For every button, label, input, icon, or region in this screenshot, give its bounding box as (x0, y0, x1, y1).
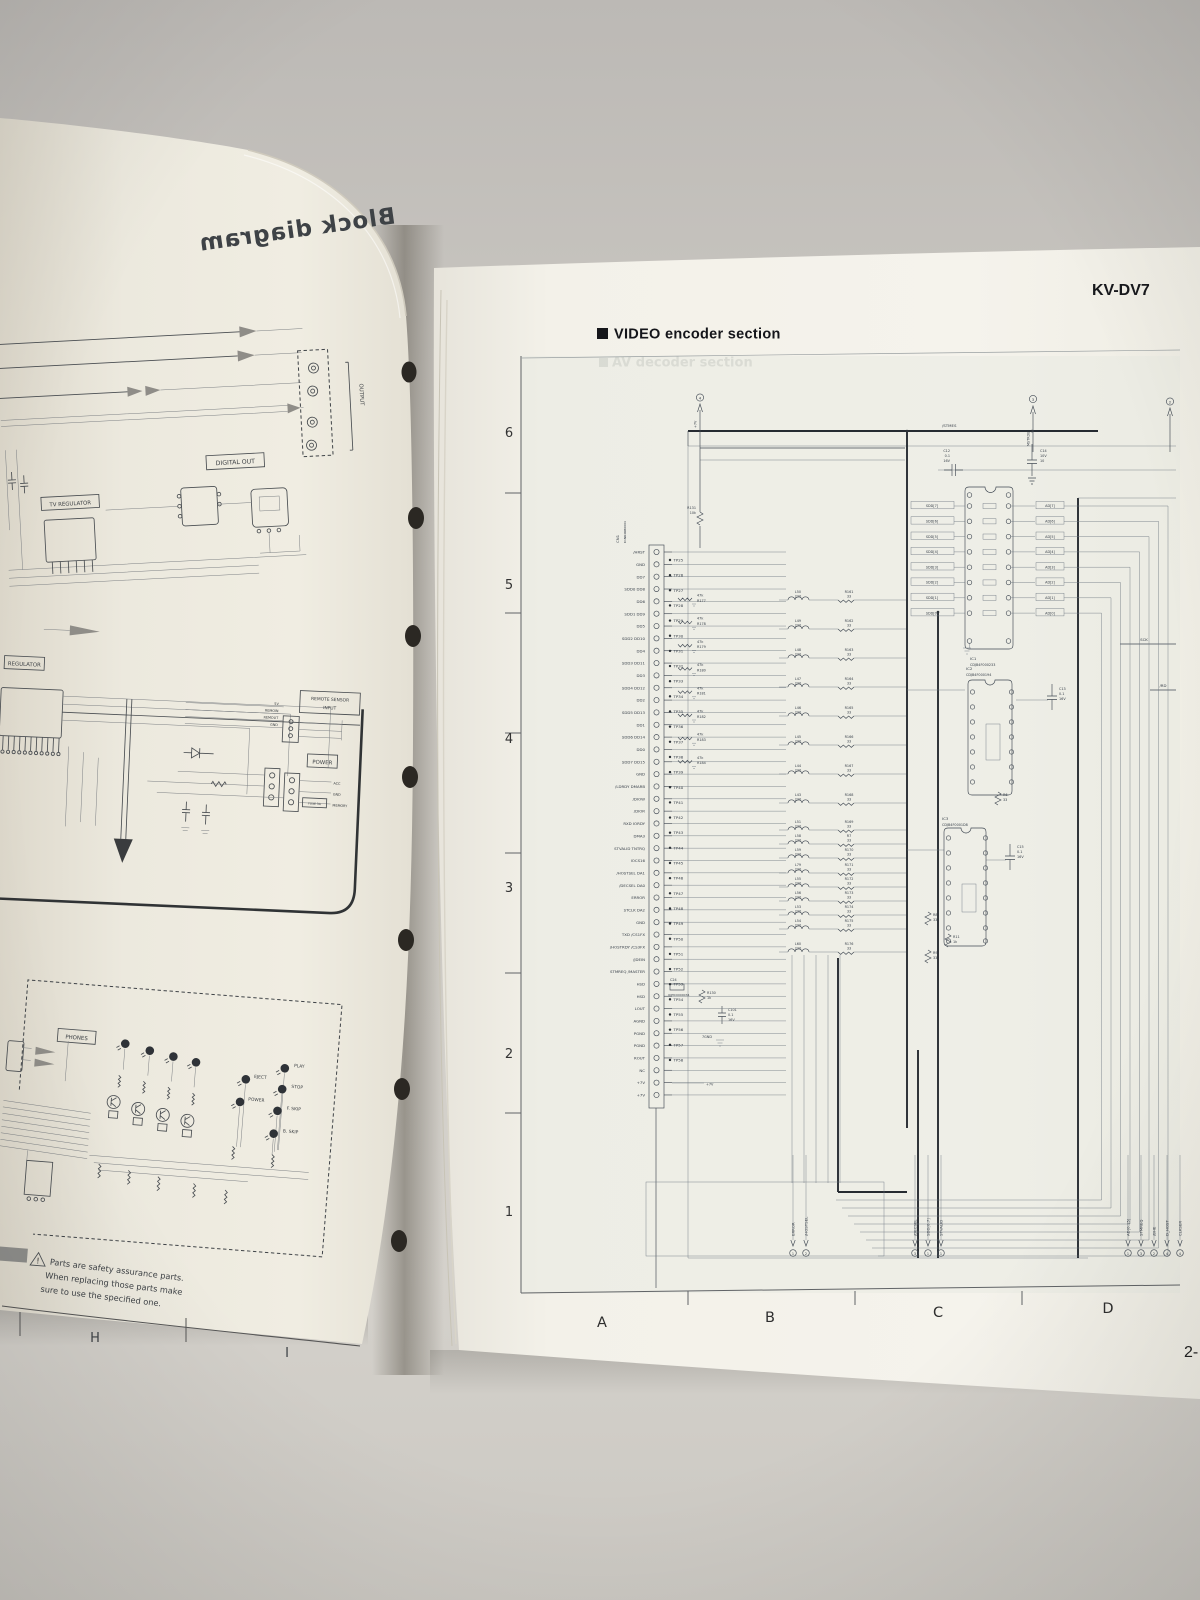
photo-service-manual: Block diagram OUTPUT DIGITAL OUT (0, 0, 1200, 1600)
vignette (0, 0, 1200, 1600)
